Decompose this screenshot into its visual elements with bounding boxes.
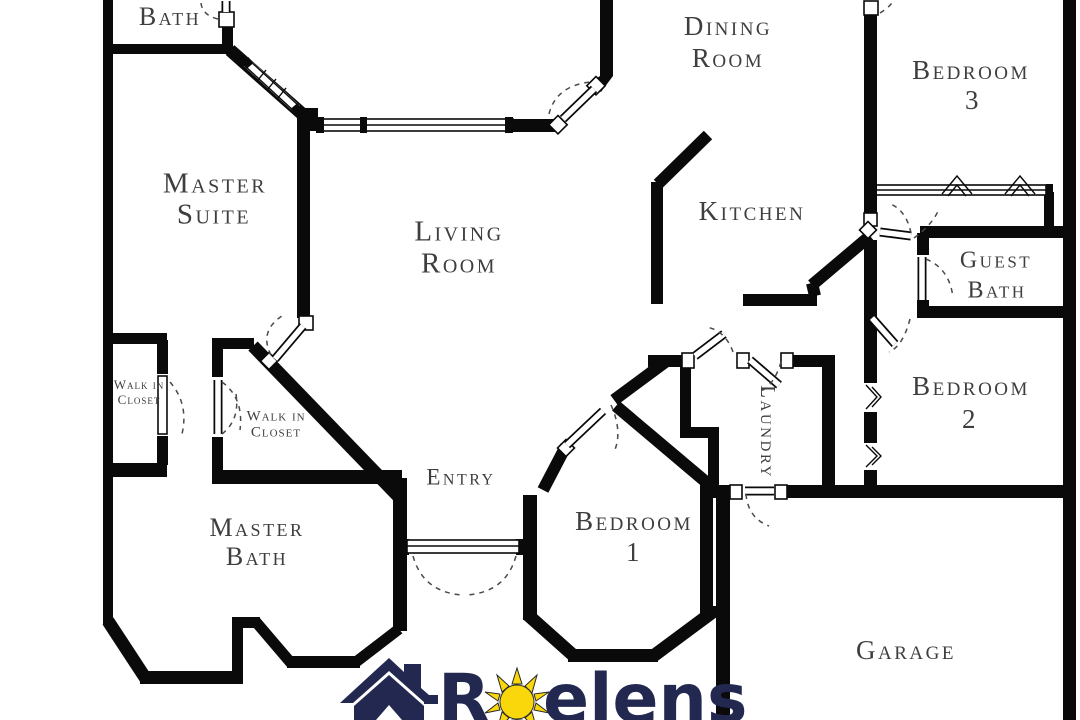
room-label-closet-left-1: Walk in [114,377,165,392]
logo-letter-r: R [438,660,490,720]
room-label-guest-bath-2: Bath [967,278,1026,304]
room-label-bedroom2-2: 2 [962,404,978,434]
room-label-entry: Entry [426,464,495,489]
room-label-closet-right-2: Closet [251,424,301,440]
room-label-living-1: Living [414,216,503,248]
logo-rest-text: elens [543,660,747,720]
room-label-bedroom3-2: 3 [965,85,981,115]
room-label-bedroom2-1: Bedroom [912,371,1030,401]
room-label-master-suite-2: Suite [177,199,251,231]
room-label-guest-bath-1: Guest [960,248,1032,274]
room-label-master-suite-1: Master [163,168,267,200]
room-label-kitchen: Kitchen [699,196,806,226]
room-label-bedroom1-1: Bedroom [575,506,693,536]
floorplan-drawing: Bath Master Suite Living Room Dining Roo… [0,0,1080,720]
floorplan-page: Bath Master Suite Living Room Dining Roo… [0,0,1080,720]
room-label-dining-1: Dining [684,11,772,41]
room-label-master-bath-2: Bath [226,542,288,571]
room-label-bedroom3-1: Bedroom [912,55,1030,85]
room-label-living-2: Room [421,248,497,280]
room-label-dining-2: Room [692,43,764,73]
room-label-closet-right-1: Walk in [246,408,305,424]
room-label-master-bath-1: Master [209,513,304,542]
room-label-laundry: Laundry [756,385,780,479]
room-label-bath: Bath [139,2,201,31]
room-label-closet-left-2: Closet [118,392,161,407]
living-room-window [316,117,513,133]
room-label-bedroom1-2: 1 [626,537,642,567]
room-label-garage: Garage [856,635,956,665]
